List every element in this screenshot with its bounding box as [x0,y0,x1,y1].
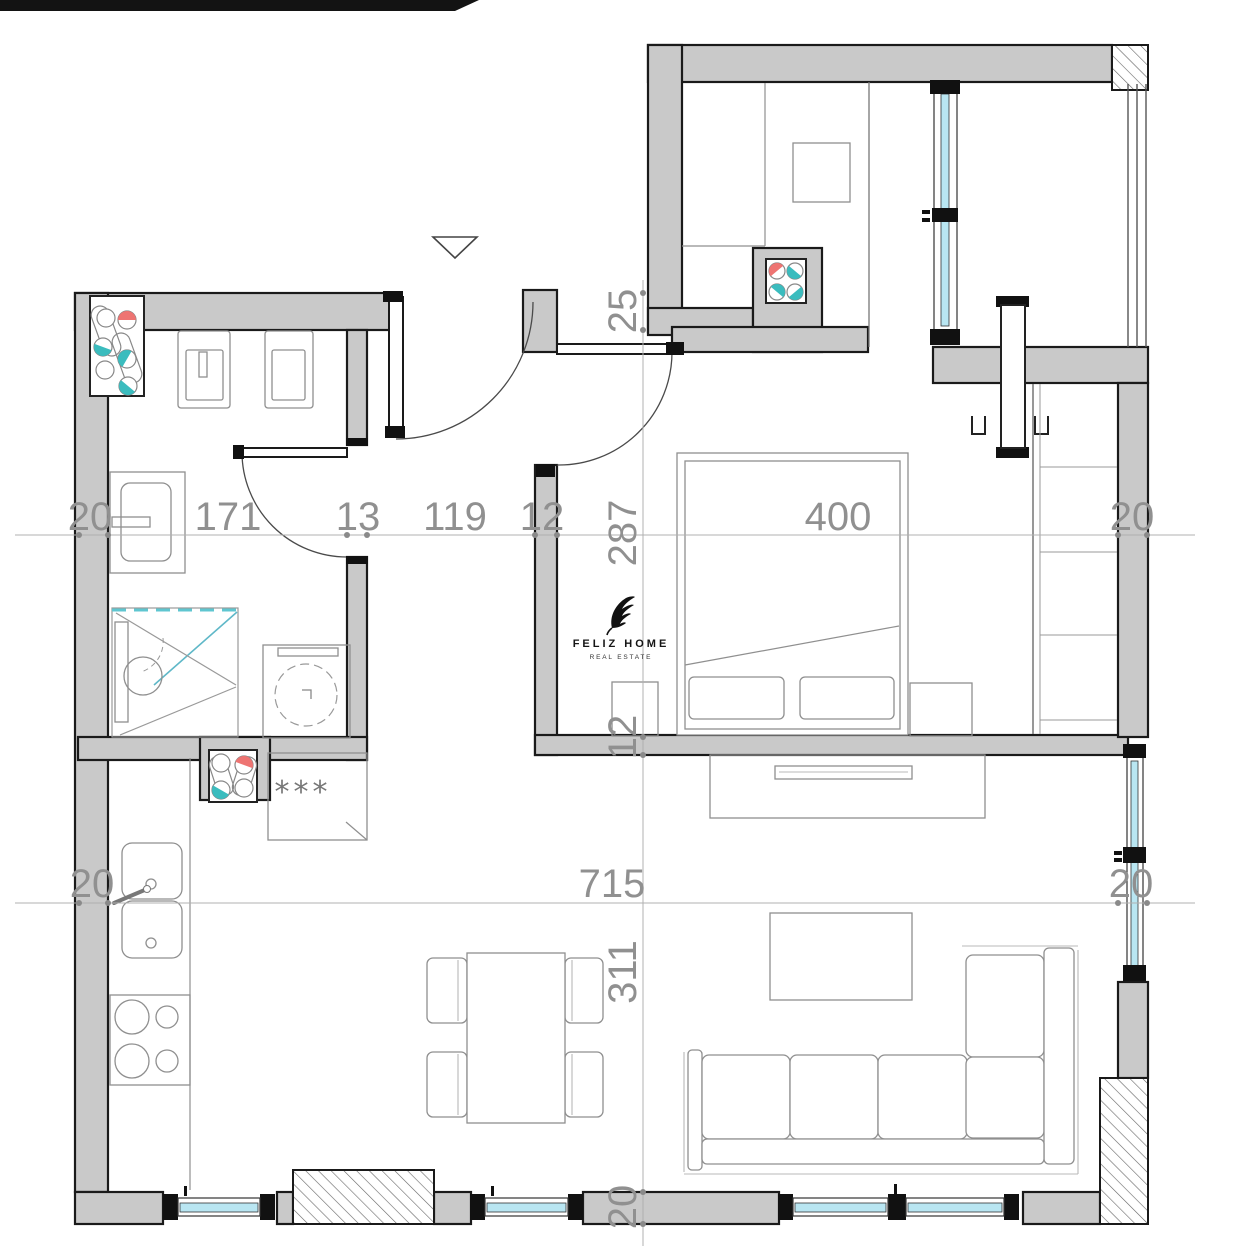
logo-name: FELIZ HOME [573,638,670,650]
nightstand-right [910,683,972,736]
dim-left-wall-bottom: 20 [70,862,115,906]
chair [565,1052,603,1117]
column-bottom-middle [293,1170,434,1224]
feliz-home-logo: FELIZ HOME REAL ESTATE [573,596,670,661]
wall-bedroom-right [1118,383,1148,737]
burner-icon [156,1050,178,1072]
window-bedroom [922,80,960,345]
sofa-back [1044,948,1074,1164]
bidet [265,331,313,408]
dim-hall-width: 119 [423,495,487,539]
chair [427,1052,467,1117]
dim-bottom-wall: 20 [601,1185,645,1230]
shower-drain [124,657,162,695]
column-top-right [1112,45,1148,90]
wall-living-right-pillar [1118,982,1148,1078]
dim-bedroom-depth: 287 [601,500,645,567]
dim-entry-depth: 25 [601,289,645,334]
sofa-armrest [688,1050,702,1170]
boiler-unit: *** [268,753,367,840]
wall-bedroom-top [672,327,868,352]
dim-living-depth: 311 [601,940,645,1004]
dim-living-width: 715 [579,862,646,906]
bed [677,453,908,735]
floor-plan: *** [0,0,1242,1246]
coffee-table [770,913,912,1000]
bedroom [612,384,1117,736]
wall-bottom-seg2 [434,1192,471,1224]
burner-icon [115,1000,149,1034]
hall-cabinet [793,143,850,202]
tv-stand [710,755,985,818]
dim-left-wall-top: 20 [68,495,113,539]
sofa-front [702,1139,1044,1164]
chair [565,958,603,1023]
burner-icon [115,1044,149,1078]
wall-bath-right-upper [347,330,367,445]
window-living-bottom [778,1184,1019,1220]
top-border-bar [0,0,479,11]
kitchen: *** [110,750,367,1190]
wardrobe [1033,384,1117,734]
dim-bedroom-wall: 12 [520,495,565,539]
window-dining [470,1186,583,1220]
toilet [178,331,230,408]
window-kitchen [163,1186,275,1220]
bedroom-door [536,342,684,477]
kitchen-radiator-icon [207,750,259,802]
wall-bottom-seg1 [277,1192,293,1224]
wall-hall-top [648,45,1112,82]
logo-tagline: REAL ESTATE [590,654,653,661]
wall-left-foot [75,1192,163,1224]
burner-icon [156,1006,178,1028]
chair [427,958,467,1023]
entrance-marker-icon [433,237,477,258]
stove [110,995,190,1085]
column-bottom-right [1100,1078,1148,1224]
living-room [684,755,1078,1174]
dim-bath-width: 171 [195,495,262,539]
wall-entry-pillar [523,290,557,352]
dining-set [427,953,603,1123]
dim-bedroom-width: 400 [805,495,872,539]
hall-heater-icon [766,259,807,303]
dim-right-wall-top: 20 [1110,495,1155,539]
wall-balcony-bottom [933,347,1148,383]
washing-machine [263,645,350,738]
corner-sofa [684,946,1078,1174]
shower [112,608,238,737]
kitchen-sink [114,843,182,958]
bath-radiator-icon [89,296,145,399]
wall-bottom-seg4 [1023,1192,1100,1224]
dim-right-wall-bottom: 20 [1109,862,1154,906]
dim-wall-mid-vert: 12 [601,715,645,760]
wall-hall-left [648,45,682,332]
entrance-door [383,291,533,439]
washbasin [110,472,185,573]
dining-table [467,953,565,1123]
dim-wall-mid: 13 [336,495,381,539]
logo-flame-icon [607,596,635,635]
boiler-label: *** [275,775,332,810]
